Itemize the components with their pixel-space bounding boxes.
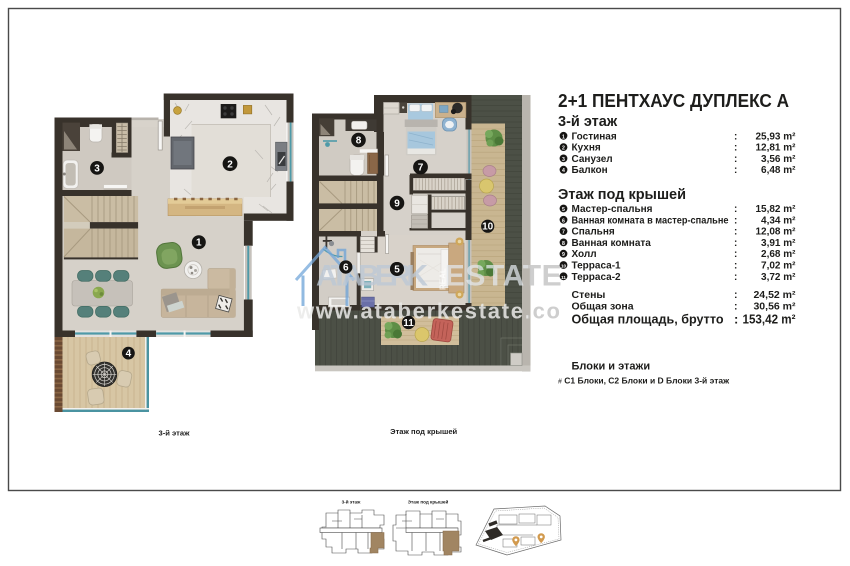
svg-text:Холл: Холл bbox=[572, 249, 597, 260]
svg-text:4: 4 bbox=[562, 168, 565, 174]
svg-text::: : bbox=[734, 261, 737, 272]
svg-text:REAL: REAL bbox=[439, 268, 448, 290]
svg-text:3: 3 bbox=[94, 163, 100, 174]
svg-text::: : bbox=[734, 143, 737, 154]
svg-text:11: 11 bbox=[403, 318, 414, 329]
svg-text:9: 9 bbox=[394, 199, 400, 210]
svg-text::: : bbox=[734, 312, 738, 327]
svg-text:7: 7 bbox=[562, 230, 565, 236]
svg-text:ATABERK: ATABERK bbox=[316, 260, 428, 293]
svg-text:8: 8 bbox=[356, 136, 362, 147]
svg-text:8: 8 bbox=[562, 241, 565, 247]
svg-text:2: 2 bbox=[227, 159, 233, 170]
svg-text:4,34 m²: 4,34 m² bbox=[761, 215, 796, 226]
svg-text:Мастер-спальня: Мастер-спальня bbox=[572, 204, 653, 215]
svg-text:3-й этаж: 3-й этаж bbox=[342, 499, 361, 505]
svg-text:5: 5 bbox=[394, 265, 400, 276]
svg-text:4: 4 bbox=[126, 349, 132, 360]
svg-text:Ванная комната: Ванная комната bbox=[572, 238, 652, 249]
svg-text:Общая зона: Общая зона bbox=[572, 300, 634, 312]
svg-text:7: 7 bbox=[418, 163, 424, 174]
svg-text:Санузел: Санузел bbox=[572, 154, 613, 165]
svg-text:12,08 m²: 12,08 m² bbox=[755, 227, 796, 238]
svg-text:Этаж под крышей: Этаж под крышей bbox=[390, 427, 457, 436]
svg-text:10: 10 bbox=[482, 222, 494, 233]
svg-text::: : bbox=[734, 227, 737, 238]
svg-text:153,42 m²: 153,42 m² bbox=[743, 312, 797, 327]
svg-text:3: 3 bbox=[562, 157, 565, 163]
svg-text:2: 2 bbox=[562, 146, 565, 152]
svg-text:15,82 m²: 15,82 m² bbox=[755, 204, 796, 215]
svg-text::: : bbox=[734, 131, 737, 142]
svg-text:www.ataberkestate.co: www.ataberkestate.co bbox=[296, 299, 560, 324]
svg-text:Стены: Стены bbox=[572, 289, 606, 301]
svg-text:Общая площадь, брутто: Общая площадь, брутто bbox=[572, 312, 724, 327]
svg-text:9: 9 bbox=[562, 252, 565, 258]
svg-text:Этаж под крышей: Этаж под крышей bbox=[558, 187, 686, 203]
svg-text::: : bbox=[734, 300, 738, 312]
svg-text:3-й этаж: 3-й этаж bbox=[558, 114, 618, 130]
svg-text::: : bbox=[734, 272, 737, 283]
svg-text:Ванная комната в мастер-спальн: Ванная комната в мастер-спальне bbox=[572, 215, 729, 226]
svg-text::: : bbox=[734, 215, 737, 226]
svg-text:30,56 m²: 30,56 m² bbox=[753, 300, 796, 312]
svg-text:Балкон: Балкон bbox=[572, 165, 608, 176]
svg-text::: : bbox=[734, 249, 737, 260]
svg-text:2+1 ПЕНТХАУС ДУПЛЕКС А: 2+1 ПЕНТХАУС ДУПЛЕКС А bbox=[558, 90, 789, 111]
svg-text:6,48 m²: 6,48 m² bbox=[761, 165, 796, 176]
svg-text:5: 5 bbox=[562, 207, 565, 213]
svg-text:Спальня: Спальня bbox=[572, 227, 615, 238]
svg-text:Блоки и этажи: Блоки и этажи bbox=[572, 361, 651, 373]
svg-text:7,02 m²: 7,02 m² bbox=[761, 261, 796, 272]
svg-text:11: 11 bbox=[561, 275, 566, 280]
svg-text::: : bbox=[734, 165, 737, 176]
svg-text::: : bbox=[734, 289, 738, 301]
svg-text:Кухня: Кухня bbox=[572, 143, 601, 154]
svg-text:# C1 Блоки, C2 Блоки и D Блоки: # C1 Блоки, C2 Блоки и D Блоки 3-й этаж bbox=[558, 376, 730, 386]
svg-text:Терраса-2: Терраса-2 bbox=[572, 272, 622, 283]
svg-text::: : bbox=[734, 238, 737, 249]
svg-text::: : bbox=[734, 204, 737, 215]
svg-text:1: 1 bbox=[196, 238, 202, 249]
svg-text::: : bbox=[734, 154, 737, 165]
svg-text:6: 6 bbox=[343, 262, 349, 273]
svg-text:3,56 m²: 3,56 m² bbox=[761, 154, 796, 165]
svg-text:2,68 m²: 2,68 m² bbox=[761, 249, 796, 260]
svg-text:Этаж под крышей: Этаж под крышей bbox=[408, 499, 449, 505]
svg-text:25,93 m²: 25,93 m² bbox=[755, 131, 796, 142]
svg-text:24,52 m²: 24,52 m² bbox=[753, 289, 796, 301]
svg-text:3-й этаж: 3-й этаж bbox=[159, 429, 191, 438]
svg-text:Гостиная: Гостиная bbox=[572, 131, 617, 142]
svg-text:3,91 m²: 3,91 m² bbox=[761, 238, 796, 249]
svg-text:1: 1 bbox=[562, 134, 565, 140]
svg-text:12,81 m²: 12,81 m² bbox=[755, 143, 796, 154]
svg-text:Терраса-1: Терраса-1 bbox=[572, 261, 622, 272]
svg-text:6: 6 bbox=[562, 218, 565, 224]
svg-text:10: 10 bbox=[561, 264, 567, 269]
svg-text:3,72 m²: 3,72 m² bbox=[761, 272, 796, 283]
